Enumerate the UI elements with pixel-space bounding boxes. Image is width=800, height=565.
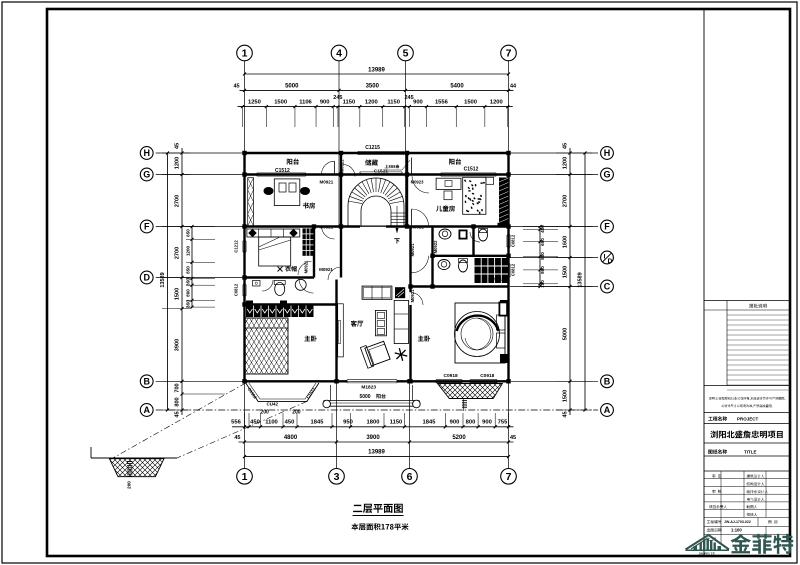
svg-text:M0922: M0922 xyxy=(433,240,438,253)
svg-text:5000: 5000 xyxy=(359,394,370,400)
svg-text:F: F xyxy=(144,221,150,231)
svg-text:700: 700 xyxy=(175,383,181,392)
svg-text:M0921: M0921 xyxy=(320,225,334,230)
svg-text:900: 900 xyxy=(320,100,330,106)
svg-text:900: 900 xyxy=(450,420,460,426)
svg-text:7: 7 xyxy=(506,47,512,59)
svg-text:6: 6 xyxy=(407,471,413,483)
svg-text:M1823: M1823 xyxy=(361,385,376,391)
svg-text:F: F xyxy=(604,221,610,231)
svg-text:3500: 3500 xyxy=(366,84,380,90)
svg-text:1200: 1200 xyxy=(365,100,378,106)
svg-text:1500: 1500 xyxy=(175,288,181,300)
svg-text:350: 350 xyxy=(186,300,191,308)
svg-text:1845: 1845 xyxy=(423,420,437,426)
svg-text:1: 1 xyxy=(242,47,248,59)
svg-text:JW-AJ-1703-022: JW-AJ-1703-022 xyxy=(724,520,751,524)
svg-text:M0921: M0921 xyxy=(410,225,424,230)
svg-text:A: A xyxy=(143,405,150,415)
svg-text:800: 800 xyxy=(186,289,191,297)
svg-text:2700: 2700 xyxy=(175,247,181,259)
svg-text:A: A xyxy=(604,405,611,415)
svg-text:1500: 1500 xyxy=(274,100,287,106)
svg-text:13589: 13589 xyxy=(578,272,584,287)
svg-text:3: 3 xyxy=(334,471,340,483)
svg-text:556: 556 xyxy=(231,420,241,426)
svg-text:4800: 4800 xyxy=(284,435,298,441)
svg-text:400: 400 xyxy=(540,225,545,233)
svg-text:245: 245 xyxy=(405,95,414,101)
svg-text:5200: 5200 xyxy=(452,435,466,441)
svg-text:1200: 1200 xyxy=(490,100,503,106)
svg-text:850: 850 xyxy=(186,266,191,274)
svg-text:C0918: C0918 xyxy=(480,373,494,379)
svg-text:1250: 1250 xyxy=(248,100,261,106)
svg-text:950: 950 xyxy=(343,420,353,426)
svg-text:C0812: C0812 xyxy=(511,234,516,247)
svg-text:2700: 2700 xyxy=(563,195,569,207)
svg-text:450: 450 xyxy=(285,420,295,426)
svg-text:1106: 1106 xyxy=(299,100,312,106)
svg-text:1150: 1150 xyxy=(387,100,400,106)
svg-text:5400: 5400 xyxy=(450,84,464,90)
svg-text:1: 1 xyxy=(242,471,248,483)
svg-text:800: 800 xyxy=(175,397,181,406)
svg-text:M0921: M0921 xyxy=(410,289,415,302)
svg-text:M0921: M0921 xyxy=(304,260,309,273)
svg-text:755: 755 xyxy=(498,420,508,426)
svg-text:H: H xyxy=(604,148,611,158)
svg-text:PROJECT: PROJECT xyxy=(737,417,759,422)
svg-text:1150: 1150 xyxy=(390,420,403,426)
svg-text:C1521: C1521 xyxy=(374,169,388,175)
svg-text:M0921: M0921 xyxy=(488,277,502,282)
svg-text:1600: 1600 xyxy=(563,236,569,248)
svg-text:5000: 5000 xyxy=(563,328,569,340)
svg-text:3900: 3900 xyxy=(366,435,380,441)
svg-text:100: 100 xyxy=(540,280,545,288)
svg-text:600: 600 xyxy=(540,238,545,246)
svg-text:C0812: C0812 xyxy=(234,283,239,296)
svg-text:5000: 5000 xyxy=(285,84,299,90)
svg-text:C1215: C1215 xyxy=(365,145,380,151)
svg-text:1500: 1500 xyxy=(464,100,477,106)
svg-text:C0812: C0812 xyxy=(511,263,516,276)
svg-text:800: 800 xyxy=(540,266,545,274)
svg-text:1200: 1200 xyxy=(563,157,569,169)
svg-text:200: 200 xyxy=(292,410,301,416)
svg-text:200: 200 xyxy=(127,481,132,489)
svg-text:7: 7 xyxy=(506,471,512,483)
svg-text:900: 900 xyxy=(413,100,423,106)
svg-text:1556: 1556 xyxy=(435,100,449,106)
svg-text:900: 900 xyxy=(482,420,492,426)
svg-text:45: 45 xyxy=(175,143,181,149)
svg-text:3900: 3900 xyxy=(175,339,181,351)
svg-text:C1212: C1212 xyxy=(234,240,239,253)
svg-text:5: 5 xyxy=(403,47,409,59)
svg-text:I: I xyxy=(604,254,606,261)
svg-text:1200: 1200 xyxy=(186,245,191,256)
svg-text:M0921: M0921 xyxy=(320,180,334,185)
svg-text:13989: 13989 xyxy=(368,449,385,455)
svg-text:M0921: M0921 xyxy=(410,243,415,256)
svg-text:1:100: 1:100 xyxy=(731,528,742,533)
svg-text:245: 245 xyxy=(333,95,342,101)
svg-text:13989: 13989 xyxy=(368,68,385,74)
svg-text:800: 800 xyxy=(466,420,476,426)
svg-text:45: 45 xyxy=(175,411,181,417)
svg-text:1150: 1150 xyxy=(343,100,356,106)
svg-text:JIN FEI TE: JIN FEI TE xyxy=(698,552,716,556)
svg-text:C: C xyxy=(604,281,611,291)
svg-text:C0918: C0918 xyxy=(444,373,458,379)
svg-text:350: 350 xyxy=(186,278,191,286)
svg-text:800: 800 xyxy=(540,252,545,260)
svg-text:200: 200 xyxy=(260,410,269,416)
svg-text:C1512: C1512 xyxy=(464,167,479,173)
svg-text:45: 45 xyxy=(234,435,240,441)
svg-text:G: G xyxy=(143,169,150,179)
svg-text:H: H xyxy=(143,148,150,158)
svg-text:D: D xyxy=(608,258,613,265)
svg-text:1845: 1845 xyxy=(311,420,325,426)
svg-text:650: 650 xyxy=(186,229,191,237)
svg-text:C1512: C1512 xyxy=(275,168,290,174)
svg-text:TITLE: TITLE xyxy=(744,450,757,455)
svg-text:CU42: CU42 xyxy=(267,402,279,407)
svg-text:1500: 1500 xyxy=(563,390,569,402)
svg-text:45: 45 xyxy=(233,84,239,90)
svg-text:D: D xyxy=(143,272,150,282)
svg-text:M0921: M0921 xyxy=(340,159,345,172)
svg-text:M0923: M0923 xyxy=(411,180,424,185)
svg-text:G: G xyxy=(603,169,610,179)
svg-text:B: B xyxy=(604,376,611,386)
svg-text:45: 45 xyxy=(563,411,569,417)
svg-text:45: 45 xyxy=(510,435,516,441)
svg-text:1800: 1800 xyxy=(367,420,380,426)
svg-text:M0921: M0921 xyxy=(319,267,333,272)
svg-text:2700: 2700 xyxy=(175,195,181,207)
svg-text:1200: 1200 xyxy=(175,157,181,169)
svg-text:13589: 13589 xyxy=(160,272,166,287)
svg-text:1500: 1500 xyxy=(563,266,569,278)
svg-text:1100: 1100 xyxy=(265,420,278,426)
svg-text:44: 44 xyxy=(510,84,517,90)
svg-text:4: 4 xyxy=(336,47,342,59)
svg-text:B: B xyxy=(143,376,150,386)
svg-text:45: 45 xyxy=(563,143,569,149)
